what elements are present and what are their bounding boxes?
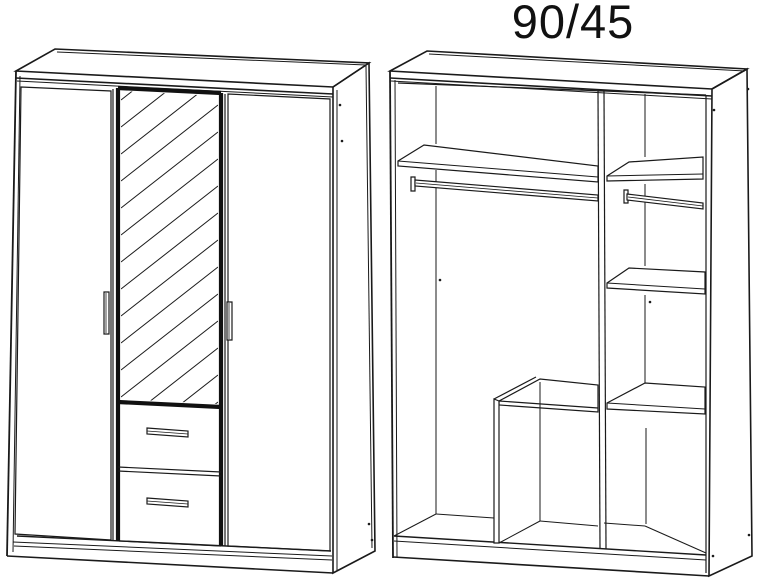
wardrobe-diagram: 90/45 <box>0 0 759 583</box>
right-door <box>225 94 330 551</box>
wardrobe-interior-view <box>390 51 752 576</box>
size-label: 90/45 <box>512 0 635 49</box>
diagram-canvas <box>0 0 759 583</box>
drawer-box <box>494 377 598 543</box>
shelf-lower-right <box>607 383 705 414</box>
drawer-handle-1 <box>147 428 188 437</box>
carcass <box>390 51 752 576</box>
hanging-rail-right <box>624 190 703 209</box>
plinth <box>7 536 333 573</box>
wardrobe-exterior-view <box>7 24 375 573</box>
drawer-front-1 <box>118 467 221 476</box>
right-door-handle <box>227 302 232 340</box>
hanging-rail-left <box>411 177 598 201</box>
shelf-top-right <box>607 157 703 181</box>
left-door-handle <box>104 292 109 334</box>
left-door <box>15 87 113 540</box>
drawer-front-2 <box>119 541 221 546</box>
drawer-handle-2 <box>147 498 188 507</box>
carcass <box>7 49 375 573</box>
shelf-middle-right <box>607 268 705 294</box>
center-divider <box>598 91 606 549</box>
top-shelf-left <box>398 145 598 182</box>
floor-panel <box>393 514 709 576</box>
dowel-holes <box>339 104 374 542</box>
